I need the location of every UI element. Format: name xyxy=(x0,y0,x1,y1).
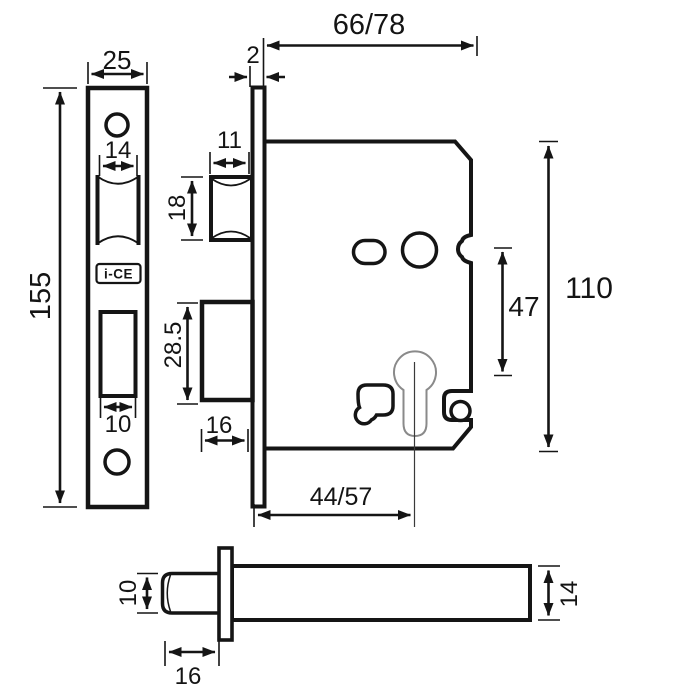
dim-latch-width: 11 xyxy=(210,127,249,174)
dim-backset: 44/57 xyxy=(254,483,411,527)
deadbolt-side xyxy=(202,302,253,400)
screw-hole-bottom xyxy=(105,450,129,474)
dim-latch-height: 18 xyxy=(164,177,203,240)
case-bottom-outline xyxy=(232,566,530,620)
dim-label-spindle-height: 10 xyxy=(115,580,142,607)
dim-plate-width: 25 xyxy=(88,45,147,84)
dim-plate-height: 155 xyxy=(25,88,77,507)
dim-case-depth: 66/78 xyxy=(267,9,477,56)
lock-dimension-diagram: i-CE 25 155 14 10 xyxy=(0,0,700,700)
dim-spindle-height: 10 xyxy=(115,574,158,614)
dim-bolt-width: 16 xyxy=(202,412,249,452)
follower-hole xyxy=(403,233,437,267)
latchbolt-side xyxy=(211,177,252,240)
faceplate-edge-strip xyxy=(253,88,265,507)
latchbolt-bottom xyxy=(163,574,220,614)
dim-label-latch-height: 18 xyxy=(164,195,191,222)
dim-label-case-depth: 66/78 xyxy=(333,9,406,41)
dim-label-bolt-cutout-width: 10 xyxy=(105,411,132,438)
dim-case-height: 110 xyxy=(539,142,613,452)
dim-label-case-thickness: 14 xyxy=(556,581,583,608)
dim-label-case-height: 110 xyxy=(565,272,613,305)
dim-label-plate-width: 25 xyxy=(103,45,132,75)
dim-spindle-length: 16 xyxy=(165,640,219,690)
oval-fixing-hole xyxy=(354,241,386,264)
edge-notch-tab xyxy=(451,402,470,421)
brand-label: i-CE xyxy=(104,267,133,282)
dim-label-latch-cutout-width: 14 xyxy=(105,137,132,164)
faceplate-bottom-strip xyxy=(219,548,232,640)
dim-label-plate-height: 155 xyxy=(25,272,57,320)
dim-label-bolt-width: 16 xyxy=(206,412,233,439)
diagram-canvas: i-CE 25 155 14 10 xyxy=(0,0,700,700)
dim-centres: 47 xyxy=(494,248,540,376)
dim-label-spindle-length: 16 xyxy=(175,663,202,690)
dim-label-latch-width: 11 xyxy=(217,127,242,154)
dim-label-backset: 44/57 xyxy=(310,483,373,511)
lock-case-side-view xyxy=(202,88,471,528)
dim-label-plate-thickness: 2 xyxy=(246,42,259,69)
screw-hole-top xyxy=(106,114,128,136)
deadbolt-cutout xyxy=(101,312,136,396)
dim-label-centres: 47 xyxy=(508,291,539,322)
dim-case-thickness: 14 xyxy=(538,566,583,620)
lock-bottom-view xyxy=(163,548,531,640)
dim-bolt-height: 28.5 xyxy=(160,303,198,404)
dim-label-bolt-height: 28.5 xyxy=(160,322,187,369)
